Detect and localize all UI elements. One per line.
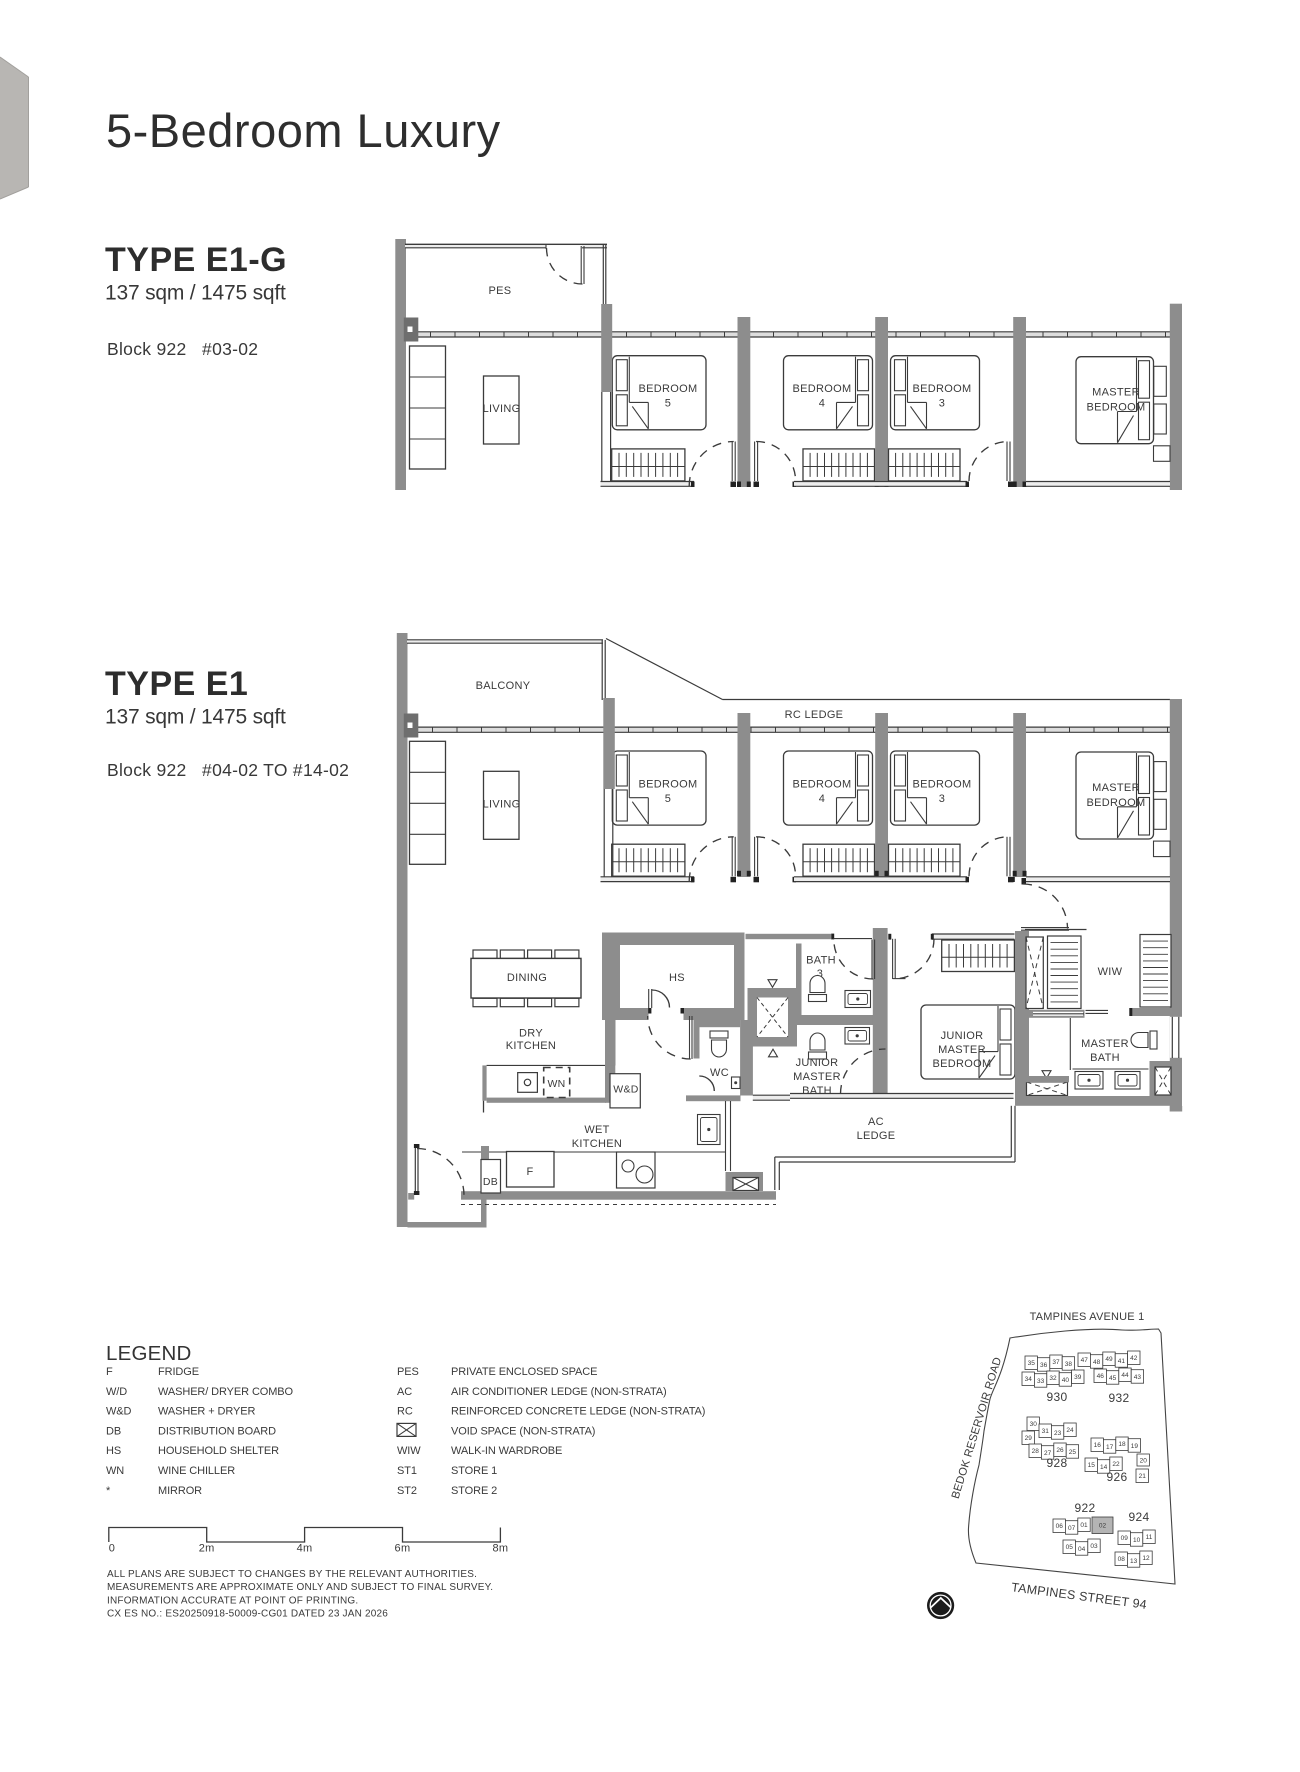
svg-text:WIW: WIW xyxy=(397,1445,421,1457)
svg-text:VOID SPACE (NON-STRATA): VOID SPACE (NON-STRATA) xyxy=(451,1425,595,1437)
svg-text:5-Bedroom Luxury: 5-Bedroom Luxury xyxy=(106,104,501,157)
svg-text:ST1: ST1 xyxy=(397,1465,417,1477)
svg-text:3: 3 xyxy=(939,398,945,410)
svg-text:MEASUREMENTS ARE APPROXIMATE O: MEASUREMENTS ARE APPROXIMATE ONLY AND SU… xyxy=(107,1582,493,1593)
svg-text:49: 49 xyxy=(1105,1356,1113,1363)
svg-text:07: 07 xyxy=(1068,1525,1076,1532)
svg-text:932: 932 xyxy=(1109,1391,1130,1405)
svg-text:34: 34 xyxy=(1025,1376,1033,1383)
svg-text:922: 922 xyxy=(1075,1501,1096,1515)
svg-text:35: 35 xyxy=(1028,1360,1036,1367)
svg-text:BEDROOM: BEDROOM xyxy=(639,383,698,395)
svg-text:BEDROOM: BEDROOM xyxy=(1087,797,1146,809)
svg-text:BATH: BATH xyxy=(1090,1052,1120,1064)
svg-text:WASHER + DRYER: WASHER + DRYER xyxy=(158,1406,255,1418)
svg-text:22: 22 xyxy=(1112,1461,1120,1468)
svg-text:BEDROOM: BEDROOM xyxy=(639,778,698,790)
svg-text:WN: WN xyxy=(547,1078,565,1090)
svg-text:TAMPINES STREET 94: TAMPINES STREET 94 xyxy=(1011,1580,1148,1612)
svg-text:BEDROOM: BEDROOM xyxy=(1087,402,1146,414)
svg-text:LIVING: LIVING xyxy=(483,403,521,415)
svg-text:DRY: DRY xyxy=(519,1028,543,1040)
svg-text:LEGEND: LEGEND xyxy=(106,1342,192,1365)
svg-text:WALK-IN WARDROBE: WALK-IN WARDROBE xyxy=(451,1445,562,1457)
svg-text:F: F xyxy=(526,1166,533,1178)
svg-text:AC: AC xyxy=(397,1386,412,1398)
svg-text:HOUSEHOLD SHELTER: HOUSEHOLD SHELTER xyxy=(158,1445,279,1457)
svg-text:W&D: W&D xyxy=(613,1084,639,1096)
svg-text:AIR CONDITIONER LEDGE (NON-STR: AIR CONDITIONER LEDGE (NON-STRATA) xyxy=(451,1386,667,1398)
svg-text:40: 40 xyxy=(1062,1377,1070,1384)
svg-text:137 sqm / 1475 sqft: 137 sqm / 1475 sqft xyxy=(105,706,286,729)
svg-text:*: * xyxy=(106,1485,111,1497)
svg-text:TYPE E1-G: TYPE E1-G xyxy=(105,241,287,279)
svg-text:26: 26 xyxy=(1056,1447,1064,1454)
svg-text:Block 922 #03-02: Block 922 #03-02 xyxy=(107,339,258,359)
svg-text:10: 10 xyxy=(1133,1537,1141,1544)
svg-text:45: 45 xyxy=(1109,1375,1117,1382)
svg-text:MASTER: MASTER xyxy=(938,1044,986,1056)
svg-text:WINE CHILLER: WINE CHILLER xyxy=(158,1465,235,1477)
svg-text:FRIDGE: FRIDGE xyxy=(158,1366,199,1378)
svg-text:BATH: BATH xyxy=(806,955,836,967)
svg-text:25: 25 xyxy=(1069,1449,1077,1456)
svg-text:RC: RC xyxy=(397,1406,413,1418)
svg-text:CX ES NO.: ES20250918-50009-CG: CX ES NO.: ES20250918-50009-CG01 DATED 2… xyxy=(107,1609,388,1620)
svg-text:MASTER: MASTER xyxy=(1092,782,1140,794)
svg-text:WASHER/ DRYER COMBO: WASHER/ DRYER COMBO xyxy=(158,1386,294,1398)
svg-text:BEDROOM: BEDROOM xyxy=(913,778,972,790)
svg-text:4: 4 xyxy=(819,398,825,410)
svg-text:TYPE E1: TYPE E1 xyxy=(105,665,248,703)
svg-text:928: 928 xyxy=(1047,1456,1068,1470)
svg-text:4: 4 xyxy=(819,793,825,805)
svg-text:DB: DB xyxy=(483,1176,498,1188)
svg-text:WN: WN xyxy=(106,1465,124,1477)
svg-text:42: 42 xyxy=(1130,1355,1138,1362)
svg-text:32: 32 xyxy=(1049,1375,1057,1382)
svg-text:REINFORCED CONCRETE LEDGE (NON: REINFORCED CONCRETE LEDGE (NON-STRATA) xyxy=(451,1406,705,1418)
svg-text:5: 5 xyxy=(665,398,671,410)
svg-text:01: 01 xyxy=(1080,1522,1088,1529)
svg-text:41: 41 xyxy=(1118,1358,1126,1365)
svg-text:46: 46 xyxy=(1097,1373,1105,1380)
svg-text:03: 03 xyxy=(1090,1543,1098,1550)
svg-text:08: 08 xyxy=(1118,1556,1126,1563)
svg-text:PRIVATE ENCLOSED SPACE: PRIVATE ENCLOSED SPACE xyxy=(451,1366,597,1378)
svg-text:INFORMATION ACCURATE AT POINT: INFORMATION ACCURATE AT POINT OF PRINTIN… xyxy=(107,1595,358,1606)
svg-text:20: 20 xyxy=(1140,1457,1148,1464)
svg-text:Block 922 #04-02 TO #14-02: Block 922 #04-02 TO #14-02 xyxy=(107,760,349,780)
svg-text:MASTER: MASTER xyxy=(1092,387,1140,399)
svg-text:AC: AC xyxy=(868,1116,884,1128)
svg-text:BEDROOM: BEDROOM xyxy=(933,1058,992,1070)
svg-text:PES: PES xyxy=(489,285,512,297)
svg-text:HS: HS xyxy=(106,1445,121,1457)
svg-text:BEDROOM: BEDROOM xyxy=(913,383,972,395)
svg-text:38: 38 xyxy=(1065,1361,1073,1368)
svg-text:MASTER: MASTER xyxy=(1081,1038,1129,1050)
svg-text:13: 13 xyxy=(1130,1558,1138,1565)
svg-text:924: 924 xyxy=(1129,1510,1150,1524)
svg-text:06: 06 xyxy=(1056,1523,1064,1530)
svg-text:2m: 2m xyxy=(199,1543,215,1555)
svg-text:0: 0 xyxy=(109,1543,115,1555)
svg-text:BALCONY: BALCONY xyxy=(476,680,531,692)
svg-text:RC LEDGE: RC LEDGE xyxy=(785,709,844,721)
svg-text:36: 36 xyxy=(1040,1362,1048,1369)
svg-text:MASTER: MASTER xyxy=(793,1071,841,1083)
svg-text:47: 47 xyxy=(1081,1357,1089,1364)
svg-text:WC: WC xyxy=(710,1067,729,1079)
svg-text:24: 24 xyxy=(1066,1427,1074,1434)
svg-text:3: 3 xyxy=(939,793,945,805)
svg-text:11: 11 xyxy=(1146,1534,1153,1541)
svg-text:09: 09 xyxy=(1121,1535,1129,1542)
svg-text:30: 30 xyxy=(1030,1421,1038,1428)
svg-text:F: F xyxy=(106,1366,113,1378)
svg-text:926: 926 xyxy=(1107,1470,1128,1484)
svg-text:44: 44 xyxy=(1121,1372,1129,1379)
svg-text:12: 12 xyxy=(1142,1555,1150,1562)
svg-text:STORE 1: STORE 1 xyxy=(451,1465,497,1477)
svg-text:6m: 6m xyxy=(395,1543,411,1555)
svg-text:930: 930 xyxy=(1047,1390,1068,1404)
svg-text:DINING: DINING xyxy=(507,972,547,984)
svg-text:PES: PES xyxy=(397,1366,419,1378)
svg-text:15: 15 xyxy=(1088,1462,1096,1469)
svg-text:43: 43 xyxy=(1134,1374,1142,1381)
svg-text:29: 29 xyxy=(1025,1435,1033,1442)
svg-text:W&D: W&D xyxy=(106,1406,132,1418)
svg-text:BEDROOM: BEDROOM xyxy=(793,383,852,395)
svg-text:21: 21 xyxy=(1139,1473,1147,1480)
svg-text:5: 5 xyxy=(665,793,671,805)
svg-text:28: 28 xyxy=(1032,1448,1040,1455)
svg-text:BEDROOM: BEDROOM xyxy=(793,778,852,790)
svg-text:LEDGE: LEDGE xyxy=(857,1130,896,1142)
svg-text:23: 23 xyxy=(1054,1430,1062,1437)
svg-text:ST2: ST2 xyxy=(397,1485,417,1497)
svg-text:8m: 8m xyxy=(492,1543,508,1555)
svg-text:137 sqm / 1475 sqft: 137 sqm / 1475 sqft xyxy=(105,282,286,305)
svg-text:31: 31 xyxy=(1042,1428,1050,1435)
svg-text:18: 18 xyxy=(1118,1441,1126,1448)
svg-text:W/D: W/D xyxy=(106,1386,127,1398)
svg-text:4m: 4m xyxy=(297,1543,313,1555)
svg-text:48: 48 xyxy=(1093,1359,1101,1366)
svg-text:DB: DB xyxy=(106,1425,121,1437)
svg-text:33: 33 xyxy=(1037,1378,1045,1385)
svg-text:HS: HS xyxy=(669,972,685,984)
svg-text:19: 19 xyxy=(1131,1443,1139,1450)
svg-text:WIW: WIW xyxy=(1098,966,1123,978)
svg-text:MIRROR: MIRROR xyxy=(158,1485,202,1497)
svg-text:04: 04 xyxy=(1078,1546,1086,1553)
svg-text:16: 16 xyxy=(1094,1442,1102,1449)
svg-text:TAMPINES AVENUE 1: TAMPINES AVENUE 1 xyxy=(1030,1311,1145,1323)
svg-text:05: 05 xyxy=(1066,1544,1074,1551)
svg-text:KITCHEN: KITCHEN xyxy=(572,1138,622,1150)
svg-text:DISTRIBUTION BOARD: DISTRIBUTION BOARD xyxy=(158,1425,276,1437)
svg-text:JUNIOR: JUNIOR xyxy=(941,1030,984,1042)
svg-text:37: 37 xyxy=(1052,1359,1060,1366)
svg-text:17: 17 xyxy=(1106,1444,1114,1451)
svg-text:02: 02 xyxy=(1099,1523,1107,1530)
svg-text:LIVING: LIVING xyxy=(483,798,521,810)
svg-text:ALL PLANS ARE SUBJECT TO CHANG: ALL PLANS ARE SUBJECT TO CHANGES BY THE … xyxy=(107,1569,477,1580)
svg-text:KITCHEN: KITCHEN xyxy=(506,1040,556,1052)
svg-text:WET: WET xyxy=(584,1124,609,1136)
svg-text:JUNIOR: JUNIOR xyxy=(796,1057,839,1069)
svg-text:39: 39 xyxy=(1074,1374,1082,1381)
svg-text:STORE 2: STORE 2 xyxy=(451,1485,497,1497)
